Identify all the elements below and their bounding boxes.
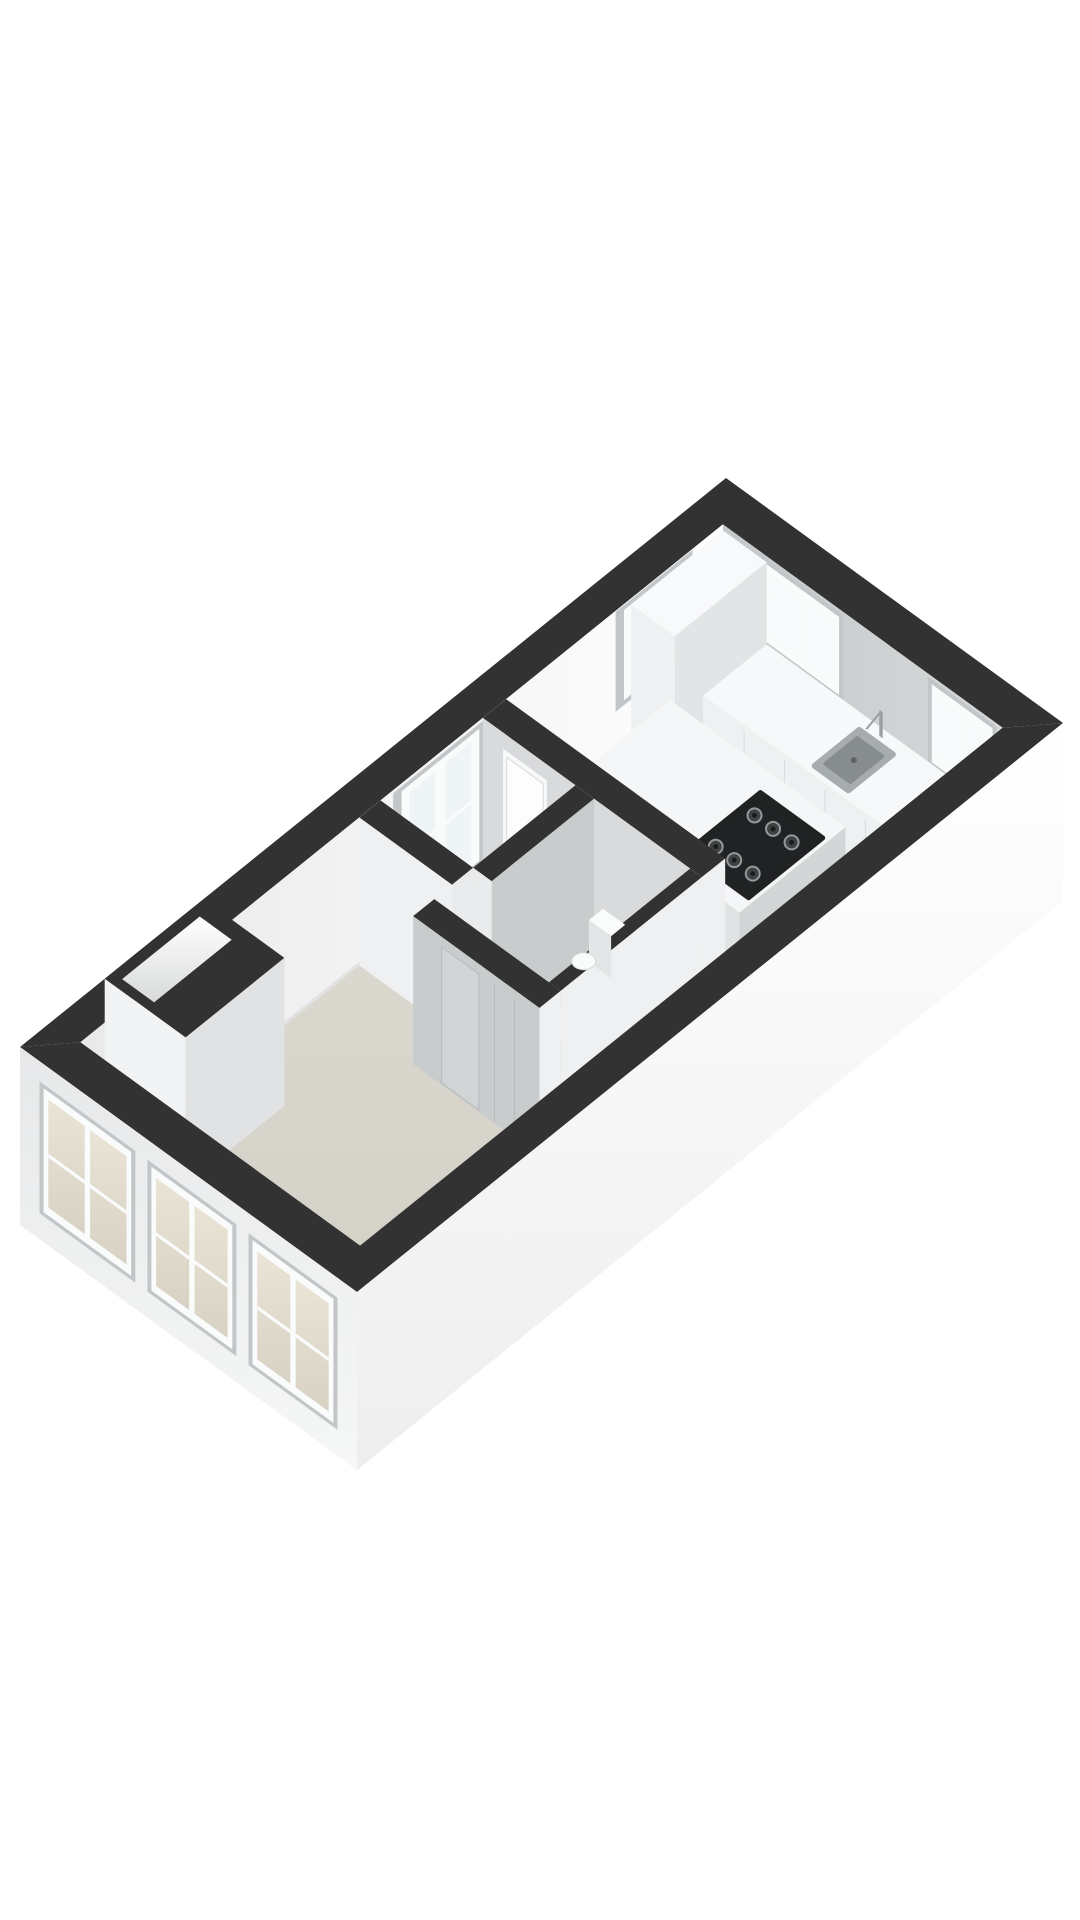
- floorplan-3d-render: [0, 0, 1080, 1920]
- bathroom-door: [442, 947, 479, 1110]
- cooktop-burner-center: [732, 858, 737, 863]
- cooktop-burner-center: [771, 826, 776, 831]
- floorplan-svg: [0, 0, 1080, 1920]
- cooktop-burner-center: [752, 813, 757, 818]
- toilet-bowl: [572, 953, 596, 970]
- cooktop-burner-center: [789, 840, 794, 845]
- sink-drain: [851, 757, 857, 763]
- wardrobe-seam-1: [514, 1000, 515, 1137]
- wardrobe-seam-0: [494, 985, 495, 1122]
- cooktop-burner-center: [713, 844, 718, 849]
- cooktop-burner-center: [750, 871, 755, 876]
